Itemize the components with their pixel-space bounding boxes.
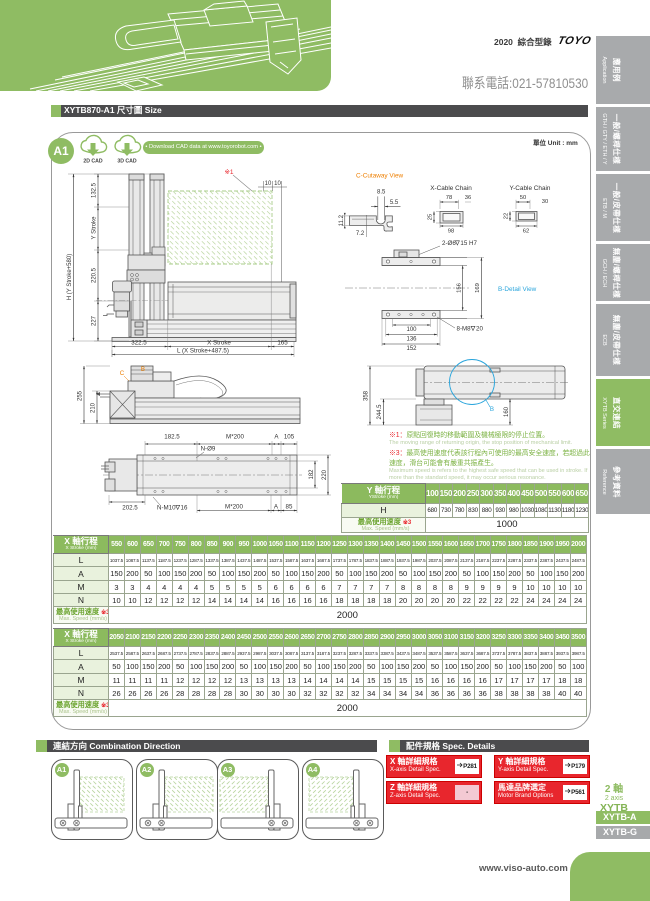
svg-text:B-Detail View: B-Detail View: [498, 286, 537, 293]
svg-text:220: 220: [322, 469, 328, 480]
svg-text:50: 50: [520, 195, 526, 201]
svg-text:B: B: [141, 366, 145, 373]
svg-text:M*200: M*200: [225, 504, 243, 511]
svg-text:7.2: 7.2: [356, 231, 365, 237]
svg-text:78: 78: [446, 195, 452, 201]
svg-text:160: 160: [504, 406, 510, 417]
svg-text:B: B: [490, 406, 494, 413]
svg-text:358: 358: [364, 390, 370, 401]
svg-text:132.5: 132.5: [92, 182, 98, 198]
svg-text:16: 16: [181, 505, 188, 512]
svg-text:A: A: [274, 434, 279, 441]
svg-text:M*200: M*200: [226, 434, 244, 441]
svg-text:227: 227: [92, 315, 98, 326]
svg-text:62: 62: [523, 229, 529, 235]
svg-text:98: 98: [448, 229, 454, 235]
svg-text:182: 182: [309, 469, 315, 480]
svg-text:165: 165: [277, 340, 288, 347]
svg-text:C: C: [120, 370, 125, 377]
svg-text:100: 100: [406, 327, 417, 333]
svg-text:210: 210: [91, 402, 97, 413]
svg-text:36: 36: [465, 195, 471, 201]
svg-text:2-Ø6: 2-Ø6: [442, 240, 456, 247]
svg-text:255: 255: [78, 390, 84, 401]
svg-text:156: 156: [457, 283, 463, 293]
svg-text:25: 25: [428, 214, 434, 220]
svg-text:X-Cable Chain: X-Cable Chain: [430, 185, 472, 192]
svg-text:182.5: 182.5: [164, 434, 180, 441]
svg-text:220.5: 220.5: [92, 267, 98, 283]
svg-text:※1: ※1: [224, 169, 233, 176]
svg-text:X Stroke: X Stroke: [207, 340, 231, 347]
svg-text:8.5: 8.5: [377, 190, 386, 196]
svg-text:85: 85: [286, 504, 293, 511]
svg-text:20: 20: [476, 326, 483, 333]
svg-text:15 H7: 15 H7: [460, 240, 477, 247]
svg-text:N-M10: N-M10: [157, 505, 176, 512]
svg-text:202.5: 202.5: [122, 505, 138, 512]
svg-text:5.5: 5.5: [390, 200, 399, 206]
svg-text:C-Cutaway View: C-Cutaway View: [356, 173, 404, 180]
svg-text:105: 105: [284, 434, 295, 441]
svg-text:A: A: [274, 504, 279, 511]
svg-text:11.2: 11.2: [339, 214, 345, 226]
svg-text:L (X Stroke+487.5): L (X Stroke+487.5): [177, 348, 229, 355]
svg-text:N-Ø9: N-Ø9: [201, 446, 216, 453]
svg-text:Y Stroke: Y Stroke: [92, 216, 98, 240]
svg-text:30: 30: [542, 199, 548, 205]
svg-text:Y-Cable Chain: Y-Cable Chain: [510, 185, 551, 192]
svg-text:8-M8: 8-M8: [457, 326, 472, 333]
svg-text:22: 22: [504, 213, 510, 219]
svg-text:322.5: 322.5: [131, 340, 147, 347]
svg-text:10: 10: [274, 181, 281, 187]
svg-text:10: 10: [265, 181, 272, 187]
svg-text:136: 136: [406, 337, 417, 343]
svg-text:169: 169: [475, 283, 481, 293]
svg-text:152: 152: [406, 346, 417, 352]
svg-text:H (Y Stroke+580): H (Y Stroke+580): [67, 254, 73, 300]
svg-text:244.5: 244.5: [377, 404, 383, 420]
